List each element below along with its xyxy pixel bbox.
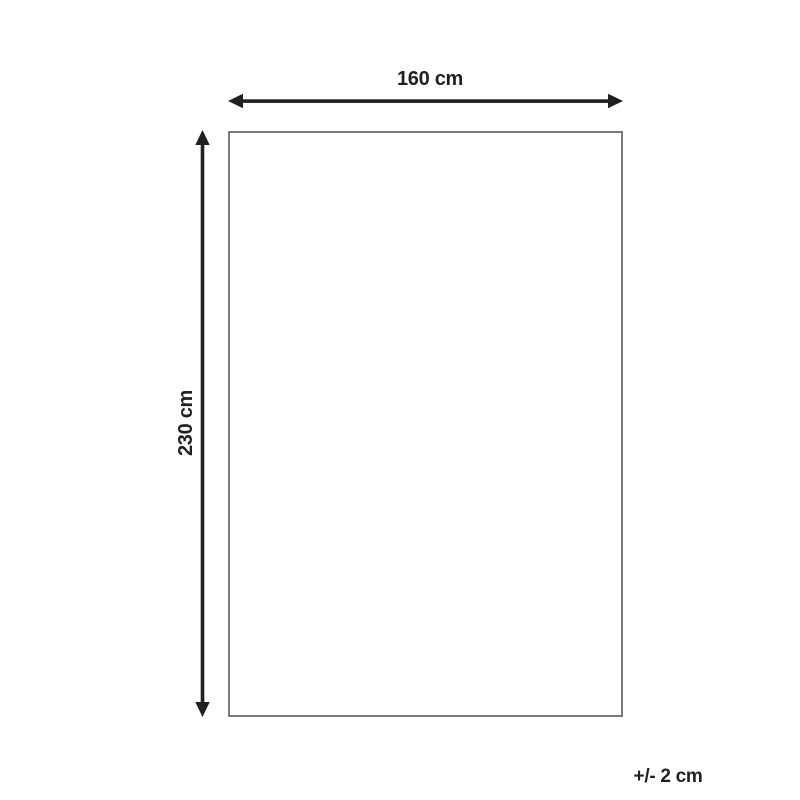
width-dimension-arrow [228, 94, 623, 108]
width-arrow-line [240, 99, 611, 103]
width-dimension-label: 160 cm [397, 69, 463, 89]
tolerance-label: +/- 2 cm [634, 767, 703, 786]
height-dimension-arrow [195, 130, 209, 717]
product-outline [229, 132, 622, 716]
height-arrow-line [201, 142, 205, 705]
height-arrow-bottom-head [195, 702, 209, 717]
width-arrow-right-head [608, 94, 623, 108]
width-arrow-left-head [228, 94, 243, 108]
height-dimension-label: 230 cm [176, 390, 196, 456]
height-arrow-top-head [195, 130, 209, 145]
dimension-diagram: 160 cm 230 cm +/- 2 cm [0, 0, 800, 800]
dimension-diagram-svg [0, 0, 800, 800]
